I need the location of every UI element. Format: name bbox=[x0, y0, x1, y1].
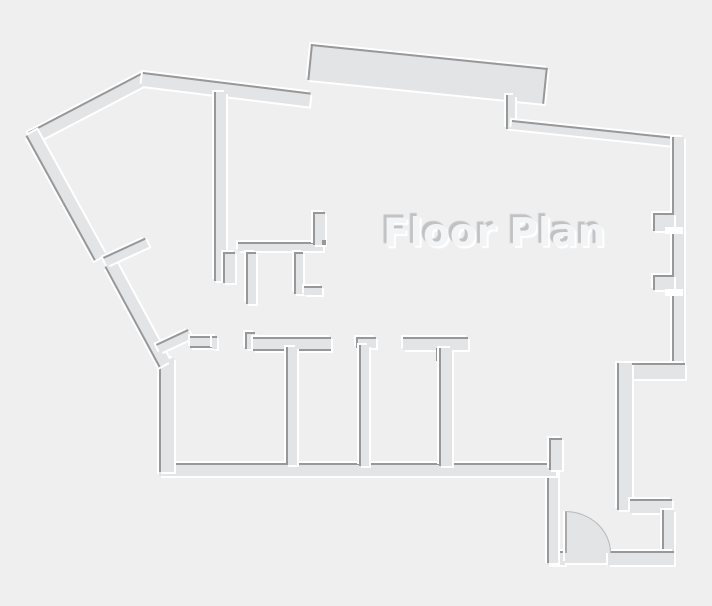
wall-room-partition-3 bbox=[439, 348, 452, 466]
wall-nook-stub-b bbox=[246, 252, 256, 304]
wall-rooms-header-1-tick bbox=[212, 336, 217, 349]
wall-entry-stub-1 bbox=[103, 238, 149, 266]
wall-top-apex-right bbox=[141, 72, 310, 106]
wall-right bbox=[672, 137, 684, 367]
wall-vestibule-left bbox=[547, 466, 558, 563]
wall-bottom bbox=[159, 463, 556, 476]
wall-top-right bbox=[511, 120, 675, 146]
floor-plan-title: Floor Plan bbox=[383, 214, 603, 253]
wall-nook-end-mark bbox=[322, 240, 326, 245]
wall-left-diagonal-upper bbox=[26, 130, 106, 261]
wall-vestibule-bottom-right bbox=[608, 551, 674, 565]
wall-room-partition-1 bbox=[286, 347, 297, 465]
wall-entry-stub-2 bbox=[156, 329, 192, 353]
wall-vestibule-right bbox=[662, 510, 674, 552]
wall-bottom-stub-up bbox=[549, 438, 562, 470]
wall-right-opening-1 bbox=[665, 227, 683, 234]
wall-threshold-under-door bbox=[565, 552, 608, 563]
wall-nook-stub-a bbox=[223, 252, 235, 283]
wall-nook-stub-d bbox=[304, 286, 322, 295]
wall-top-left-diagonal bbox=[28, 72, 149, 144]
floor-plan-canvas: Floor Plan bbox=[0, 0, 712, 606]
wall-right-lower bbox=[617, 363, 632, 510]
wall-nook-horizontal bbox=[238, 242, 323, 251]
wall-room-partition-2 bbox=[359, 345, 369, 466]
wall-left-vertical bbox=[159, 358, 174, 472]
door-jamb-mark bbox=[436, 348, 438, 361]
wall-right-pier-2 bbox=[653, 275, 674, 290]
door-swing-arc bbox=[565, 511, 611, 553]
wall-right-opening-2 bbox=[665, 289, 683, 296]
wall-nook-stub-c bbox=[294, 252, 303, 294]
